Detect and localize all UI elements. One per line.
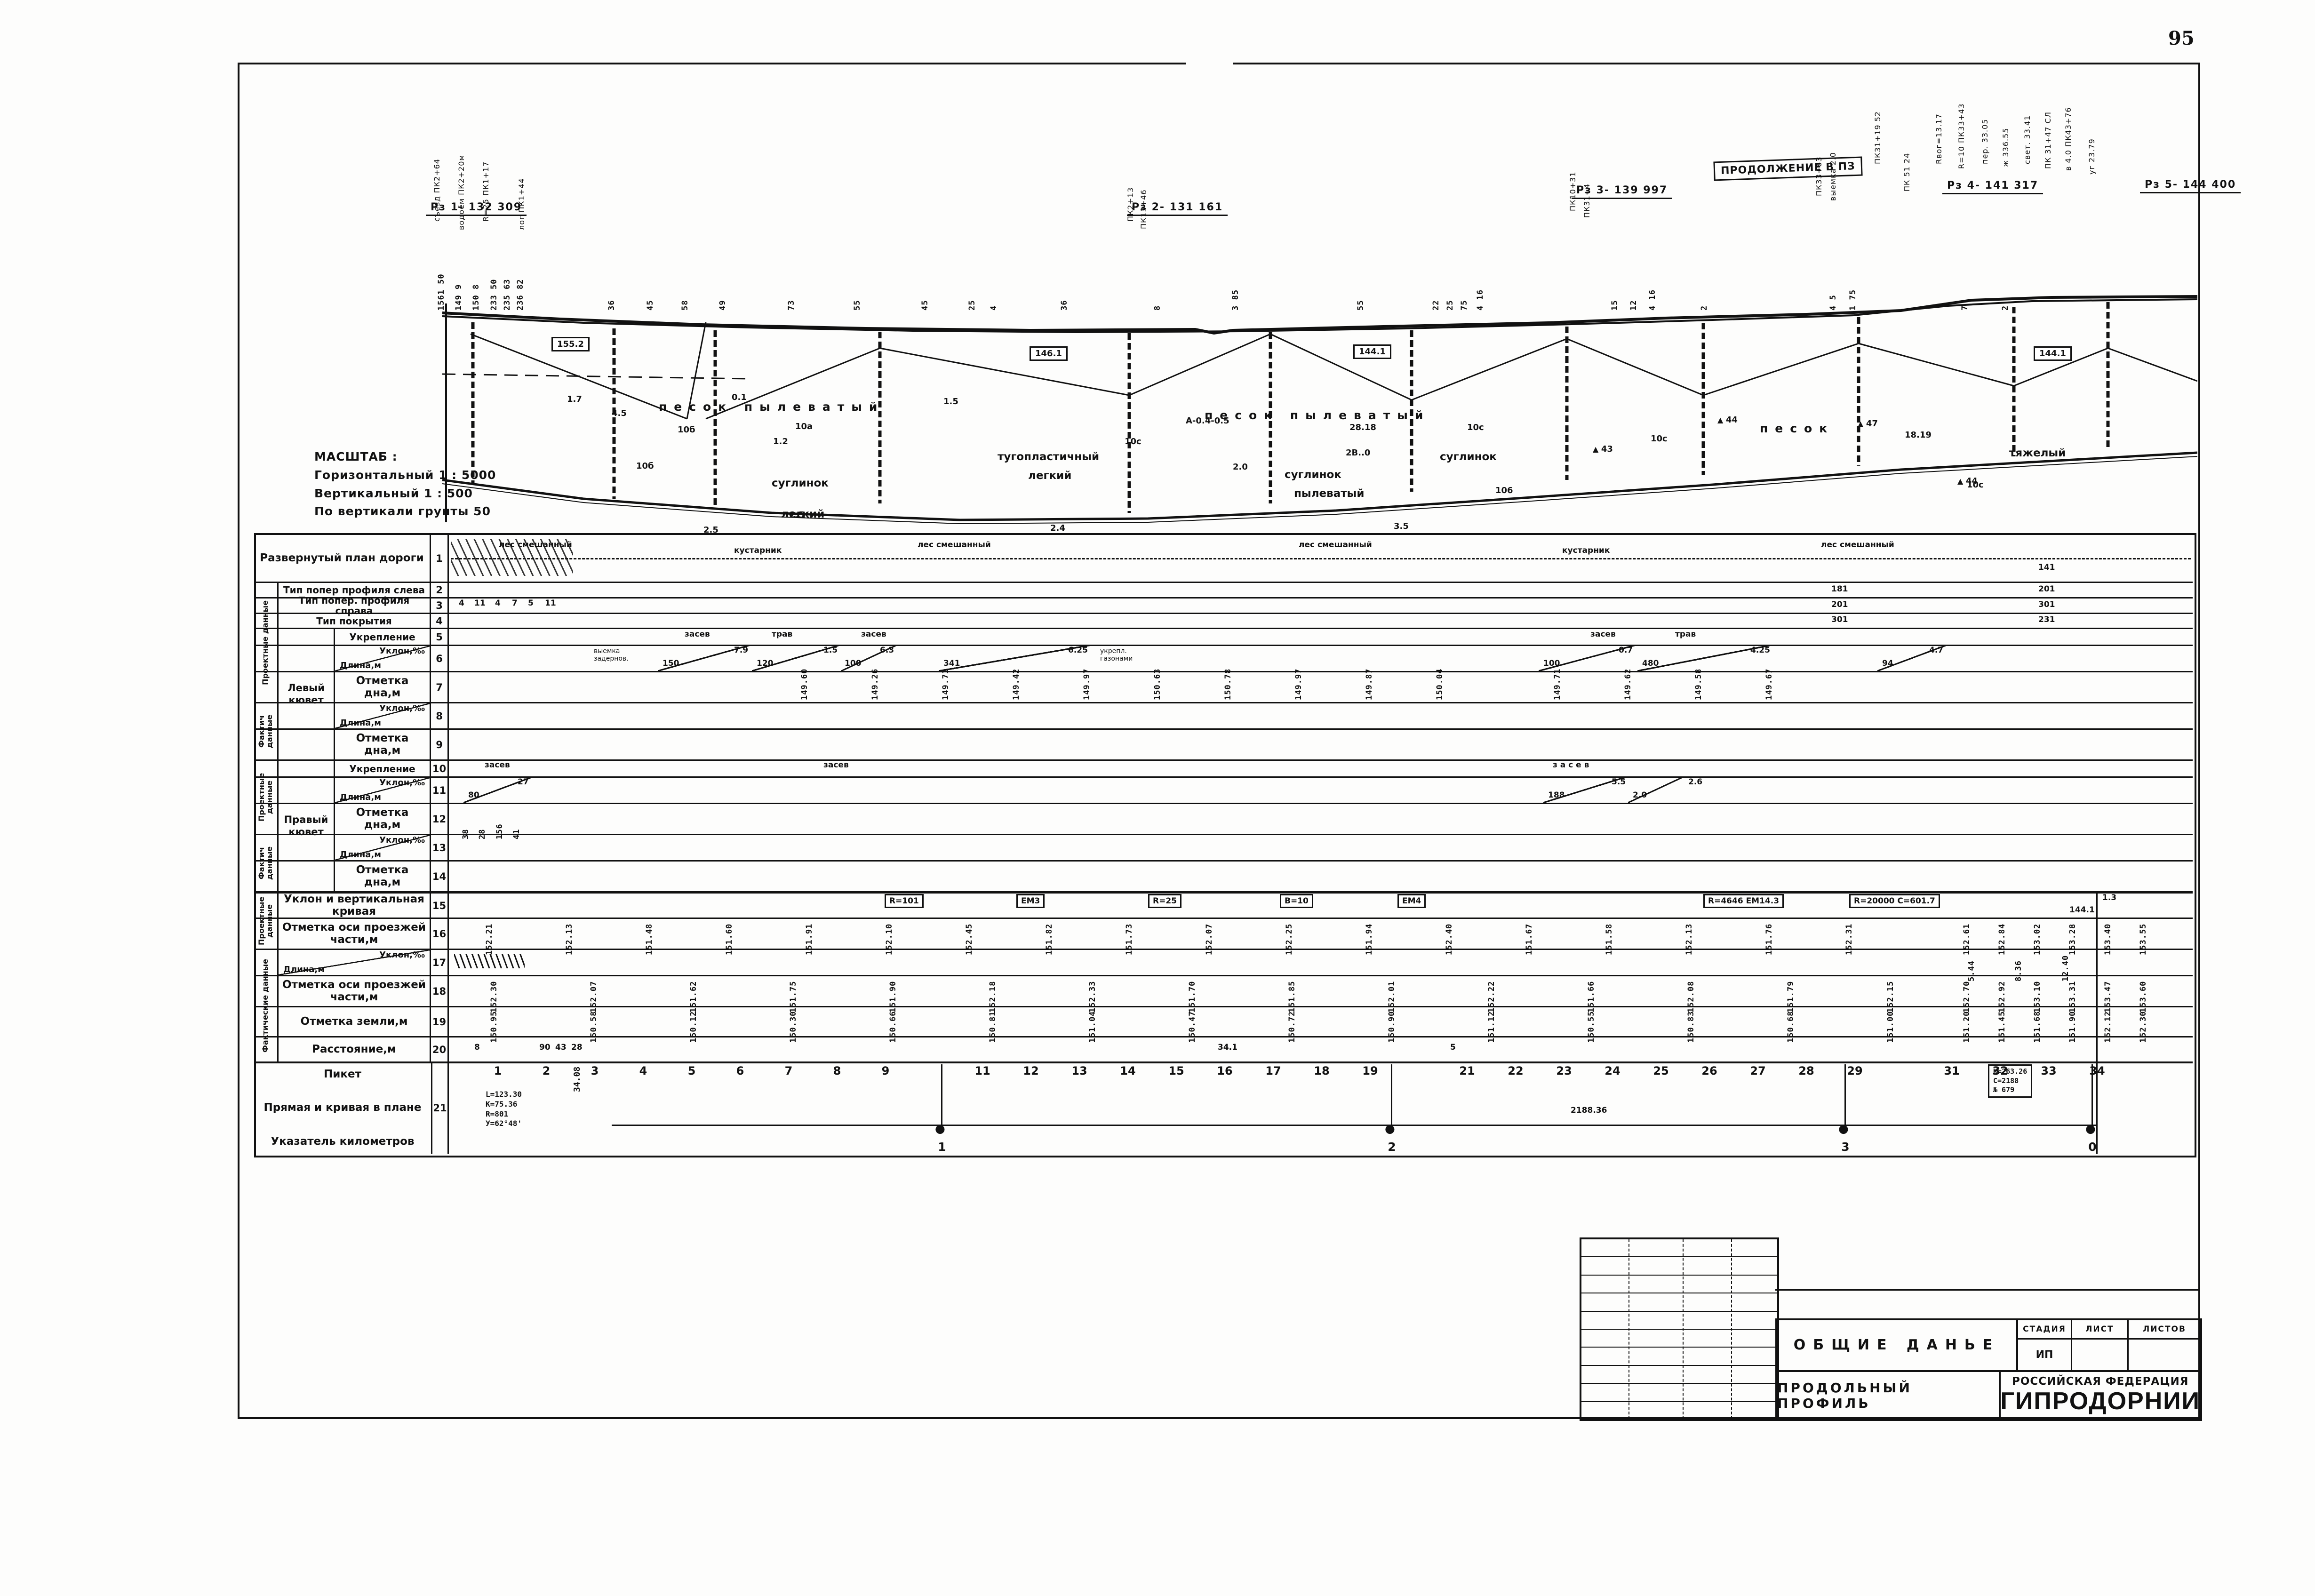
titleblock: ОБЩИЕ ДАНЬЕ СТАДИЯ ЛИСТ ЛИСТОВ ИП ПРОДОЛ… <box>1775 1318 2202 1421</box>
alignment-mark: 2188.36 <box>1571 1106 1607 1115</box>
stage-label: СТАДИЯ <box>2018 1320 2072 1338</box>
grid-row <box>1581 1365 1777 1383</box>
sheets-value <box>2129 1340 2200 1370</box>
titleblock-bottom-row: ПРОДОЛЬНЫЙ ПРОФИЛЬ РОССИЙСКАЯ ФЕДЕРАЦИЯ … <box>1777 1372 2200 1419</box>
grid-row <box>1581 1401 1777 1419</box>
general-data-title: ОБЩИЕ ДАНЬЕ <box>1777 1320 2018 1370</box>
sheet-value <box>2072 1340 2129 1370</box>
stage-value: ИП <box>2018 1340 2072 1370</box>
grid-row <box>1581 1347 1777 1365</box>
titleblock-top-row: ОБЩИЕ ДАНЬЕ СТАДИЯ ЛИСТ ЛИСТОВ ИП <box>1777 1320 2200 1372</box>
grid-row <box>1581 1311 1777 1329</box>
stage-header: СТАДИЯ ЛИСТ ЛИСТОВ <box>2018 1320 2200 1340</box>
organization-block: РОССИЙСКАЯ ФЕДЕРАЦИЯ ГИПРОДОРНИИ <box>2001 1372 2200 1419</box>
stage-values: ИП <box>2018 1340 2200 1370</box>
grid-row <box>1581 1239 1777 1256</box>
grid-column-divider <box>1731 1239 1732 1419</box>
alignment-mark-rot34: 34.08 <box>572 1067 582 1092</box>
organization-name: ГИПРОДОРНИИ <box>2001 1388 2200 1416</box>
sheets-label: ЛИСТОВ <box>2129 1320 2200 1338</box>
grid-column-divider <box>1683 1239 1684 1419</box>
titleblock-signature-grid <box>1580 1237 1779 1421</box>
grid-row <box>1581 1256 1777 1274</box>
grid-column-divider <box>1628 1239 1629 1419</box>
alignment-mark-hline <box>612 1125 2098 1126</box>
stage-section: СТАДИЯ ЛИСТ ЛИСТОВ ИП <box>2018 1320 2200 1370</box>
alignment-mark-pbox: К=263.26 С=2188 № 679 <box>1988 1064 2032 1098</box>
federation-label: РОССИЙСКАЯ ФЕДЕРАЦИЯ <box>2012 1375 2189 1388</box>
sheet-label: ЛИСТ <box>2072 1320 2129 1338</box>
alignment-mark-note: L=123.30 К=75.36 R=801 У=62°48' <box>486 1090 522 1129</box>
grid-row <box>1581 1329 1777 1347</box>
grid-row <box>1581 1383 1777 1401</box>
drawing-sheet: 95 МАСШТАБ : Горизонтальный 1 : 5000 Вер… <box>0 0 2315 1596</box>
grid-row <box>1581 1293 1777 1310</box>
titleblock-upper-rule <box>1775 1289 2198 1291</box>
drawing-title: ПРОДОЛЬНЫЙ ПРОФИЛЬ <box>1777 1372 2001 1419</box>
grid-row <box>1581 1275 1777 1293</box>
